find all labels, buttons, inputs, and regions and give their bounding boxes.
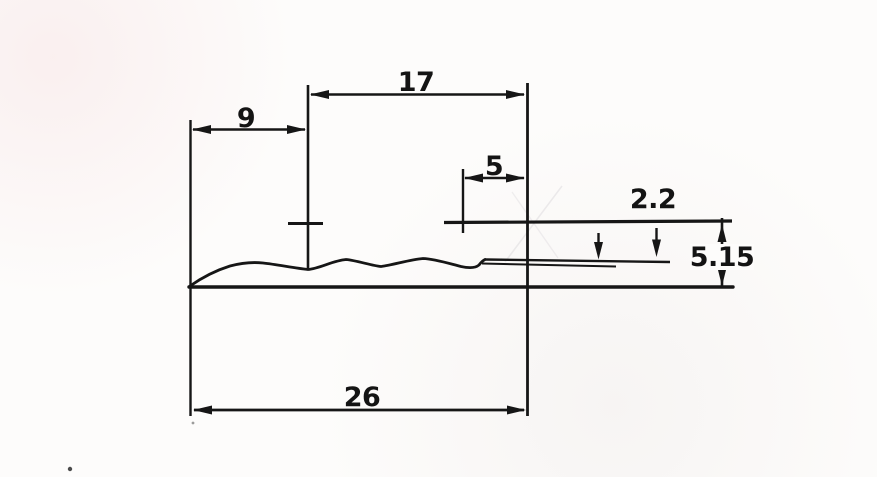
- dim-2-2-arrow-left: [594, 242, 603, 260]
- dim-5-label: 5: [485, 151, 503, 182]
- dim-9-arrow-right: [287, 125, 306, 134]
- scan-artifact-diagonal-2: [512, 192, 558, 258]
- dim-26-arrow-right: [507, 406, 526, 415]
- dimension-17: 17: [310, 67, 525, 99]
- dim-9-label: 9: [237, 103, 255, 134]
- profile-tail-bottom-edge: [482, 264, 616, 267]
- dim-2-2-arrow-right: [652, 240, 661, 258]
- part-profile: [189, 259, 733, 288]
- profile-dimension-drawing: 17 9 5 2.2 5.1: [0, 0, 877, 477]
- dim-5-arrow-right: [506, 174, 525, 183]
- dimension-9: 9: [192, 103, 306, 134]
- dim-9-arrow-left: [192, 125, 211, 134]
- dimension-26: 26: [193, 382, 526, 415]
- dimension-5-15: 5.15: [690, 218, 755, 286]
- top-reference-line: [444, 221, 732, 223]
- profile-tail-top-edge: [485, 260, 670, 263]
- dim-2-2-label: 2.2: [630, 184, 676, 215]
- scan-speck-2: [192, 422, 195, 425]
- dim-5-15-arrow-up: [718, 224, 727, 242]
- dim-26-arrow-left: [193, 406, 212, 415]
- scan-artifact-lines: [68, 186, 562, 471]
- dimension-5: 5: [464, 151, 525, 183]
- profile-top-edge: [190, 259, 485, 287]
- dim-17-label: 17: [398, 67, 435, 98]
- dim-17-arrow-right: [506, 90, 525, 99]
- scan-speck-1: [68, 467, 72, 471]
- dim-26-label: 26: [344, 382, 381, 413]
- dim-5-15-label: 5.15: [690, 242, 755, 273]
- dim-17-arrow-left: [310, 90, 329, 99]
- technical-drawing-page: 17 9 5 2.2 5.1: [0, 0, 877, 477]
- dim-5-arrow-left: [464, 174, 483, 183]
- extension-lines: [191, 83, 733, 416]
